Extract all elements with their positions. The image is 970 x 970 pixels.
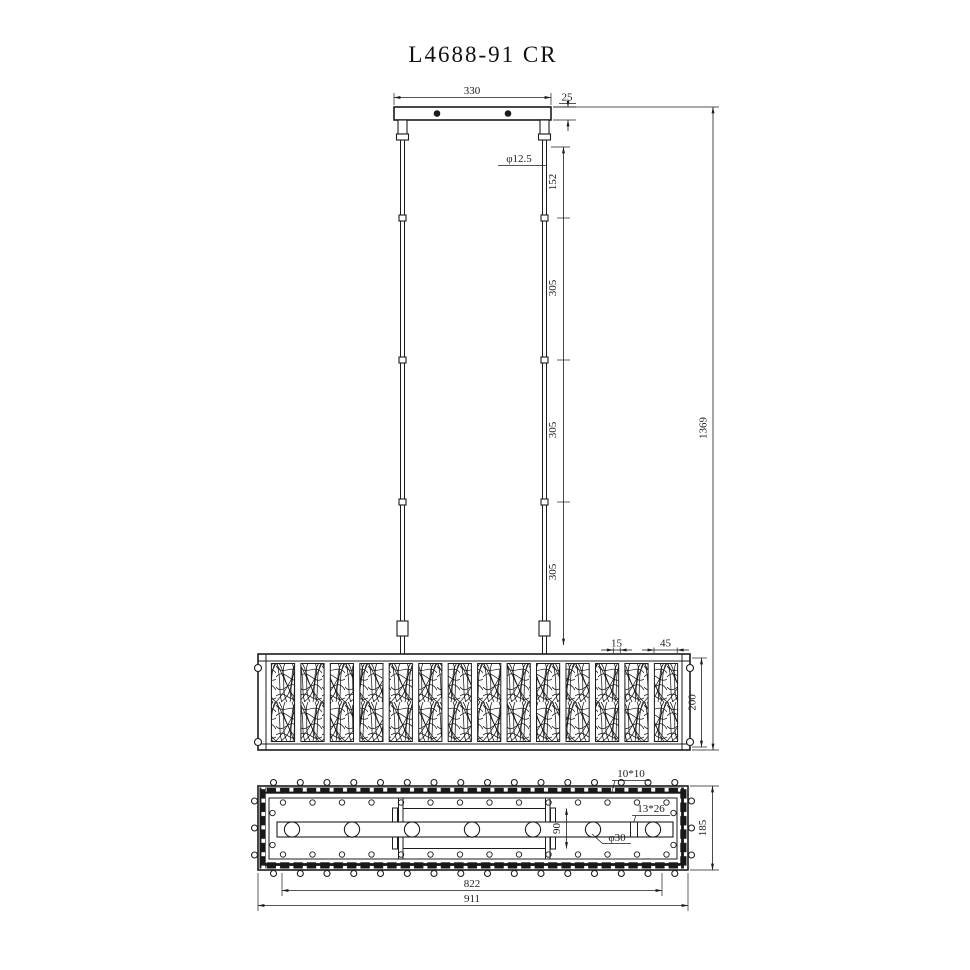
ceiling-canopy: [394, 107, 551, 120]
dim-rod-seg4-label: 305: [547, 563, 559, 580]
side-knob: [255, 739, 262, 746]
screw-hole: [339, 852, 344, 857]
border-bead: [431, 871, 437, 877]
screw-hole: [457, 800, 462, 805]
crystal-panel: [271, 664, 294, 742]
border-bead: [565, 780, 571, 786]
screw-hole: [280, 800, 285, 805]
border-bead: [378, 871, 384, 877]
crystal-panel: [419, 664, 442, 742]
lamp-holder: [464, 822, 479, 837]
screw-hole: [310, 852, 315, 857]
side-knob: [687, 665, 694, 672]
crystal-panel: [625, 664, 648, 742]
dim-panel-width: 45: [642, 638, 689, 654]
dim-panel-gap-label: 15: [611, 638, 623, 650]
shade-front: [255, 654, 694, 750]
crystal-panel: [566, 664, 589, 742]
dim-canopy-width: 330: [394, 85, 551, 105]
dim-rod-seg2-label: 305: [547, 279, 559, 296]
bead-strip-right: [680, 788, 686, 869]
dim-holder-diameter-label: φ30: [608, 832, 626, 844]
border-bead: [511, 871, 517, 877]
border-bead: [538, 871, 544, 877]
screw-hole: [339, 800, 344, 805]
screw-hole: [487, 800, 492, 805]
screw-hole: [428, 800, 433, 805]
border-bead: [252, 825, 258, 831]
bead-strip-top: [260, 788, 687, 794]
lamp-holder: [284, 822, 299, 837]
technical-drawing: L4688-91 CR: [0, 0, 970, 970]
screw-hole: [280, 852, 285, 857]
plan-view: 90 10*10 13*26 φ30 185 822: [252, 768, 720, 911]
dim-inner-length-label: 822: [464, 878, 481, 890]
border-bead: [485, 780, 491, 786]
border-bead: [511, 780, 517, 786]
side-knob: [687, 739, 694, 746]
border-bead: [689, 798, 695, 804]
front-view: 330 25 φ12.5 152 305 305 305: [255, 85, 720, 750]
crystal-panel: [448, 664, 471, 742]
side-knob: [255, 665, 262, 672]
dim-rod-seg1-label: 152: [547, 174, 559, 191]
border-bead: [431, 780, 437, 786]
crystal-panel: [389, 664, 412, 742]
dim-rod-seg3-label: 305: [547, 421, 559, 438]
border-bead: [378, 780, 384, 786]
lamp-holder: [404, 822, 419, 837]
dim-canopy-width-label: 330: [464, 85, 481, 97]
border-bead: [324, 871, 330, 877]
screw-hole: [575, 800, 580, 805]
border-bead: [324, 780, 330, 786]
border-bead: [351, 780, 357, 786]
dim-total-height-label: 1369: [698, 417, 710, 440]
border-bead: [645, 871, 651, 877]
border-bead: [689, 852, 695, 858]
dim-shade-height-label: 200: [687, 694, 699, 711]
screw-hole: [575, 852, 580, 857]
screw-hole: [671, 842, 676, 847]
screw-hole: [671, 810, 676, 815]
crystal-panel: [507, 664, 530, 742]
bead-strip-left: [260, 788, 266, 869]
border-bead: [297, 871, 303, 877]
canopy-screw-icon: [505, 110, 512, 117]
dim-canopy-thickness-label: 25: [562, 92, 574, 104]
border-bead: [404, 871, 410, 877]
dim-crystal-size-label: 13*26: [637, 803, 665, 815]
crystal-panel: [596, 664, 619, 742]
dim-panel-width-label: 45: [660, 638, 672, 650]
crystal-panel: [478, 664, 501, 742]
border-bead: [271, 871, 277, 877]
crystal-panel: [537, 664, 560, 742]
border-bead: [592, 780, 598, 786]
bead-strip-bottom: [260, 862, 687, 868]
border-bead: [297, 780, 303, 786]
screw-hole: [457, 852, 462, 857]
crystal-panel: [301, 664, 324, 742]
crystal-panel: [360, 664, 383, 742]
border-bead: [672, 780, 678, 786]
page-title: L4688-91 CR: [408, 42, 557, 67]
lamp-holder: [344, 822, 359, 837]
dim-rod-diameter: φ12.5: [498, 153, 546, 166]
border-bead: [458, 780, 464, 786]
border-bead: [485, 871, 491, 877]
dim-bead-size-label: 10*10: [617, 768, 645, 780]
screw-hole: [270, 842, 275, 847]
canopy-screw-icon: [434, 110, 441, 117]
dim-rod-diameter-label: φ12.5: [506, 153, 532, 165]
border-bead: [565, 871, 571, 877]
lamp-holder: [645, 822, 660, 837]
screw-hole: [310, 800, 315, 805]
suspension-rod-left: [397, 120, 409, 654]
dim-canopy-thickness: 25: [553, 92, 576, 132]
border-bead: [252, 798, 258, 804]
border-bead: [458, 871, 464, 877]
screw-hole: [664, 852, 669, 857]
screw-hole: [516, 800, 521, 805]
border-bead: [672, 871, 678, 877]
border-bead: [618, 871, 624, 877]
crystal-panel: [654, 664, 677, 742]
screw-hole: [605, 800, 610, 805]
border-bead: [689, 825, 695, 831]
dim-rod-segments: 152 305 305 305: [547, 147, 570, 645]
dim-channel-width-label: 90: [551, 823, 563, 835]
crystal-panel: [330, 664, 353, 742]
border-bead: [271, 780, 277, 786]
screw-hole: [369, 852, 374, 857]
dim-overall-length-label: 911: [464, 893, 480, 905]
border-bead: [592, 871, 598, 877]
lamp-holder: [525, 822, 540, 837]
screw-hole: [428, 852, 433, 857]
screw-hole: [634, 852, 639, 857]
border-bead: [252, 852, 258, 858]
dim-panel-gap: 15: [601, 638, 632, 654]
screw-hole: [270, 810, 275, 815]
screw-hole: [369, 800, 374, 805]
screw-hole: [516, 852, 521, 857]
border-bead: [538, 780, 544, 786]
border-bead: [404, 780, 410, 786]
drawing-page: L4688-91 CR: [0, 0, 970, 970]
border-bead: [351, 871, 357, 877]
screw-hole: [487, 852, 492, 857]
screw-hole: [605, 852, 610, 857]
dim-body-depth-label: 185: [697, 819, 709, 836]
